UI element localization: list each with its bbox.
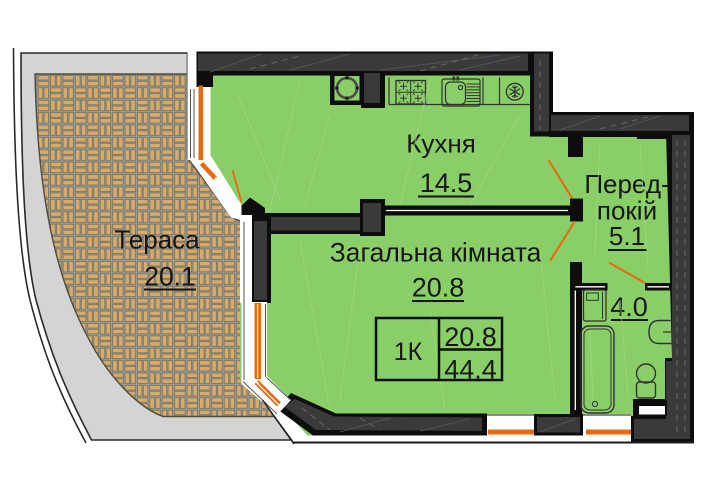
- svg-text:20.8: 20.8: [444, 322, 497, 352]
- svg-text:44.4: 44.4: [444, 355, 497, 385]
- svg-text:20.1: 20.1: [144, 262, 196, 292]
- svg-text:14.5: 14.5: [420, 168, 473, 198]
- svg-text:Тераса: Тераса: [114, 224, 200, 254]
- svg-text:Загальна кімната: Загальна кімната: [330, 238, 542, 268]
- svg-text:5.1: 5.1: [609, 221, 645, 251]
- svg-text:4.0: 4.0: [610, 292, 648, 322]
- svg-text:1К: 1К: [394, 338, 423, 366]
- svg-text:20.8: 20.8: [412, 273, 465, 303]
- svg-text:Кухня: Кухня: [406, 129, 476, 159]
